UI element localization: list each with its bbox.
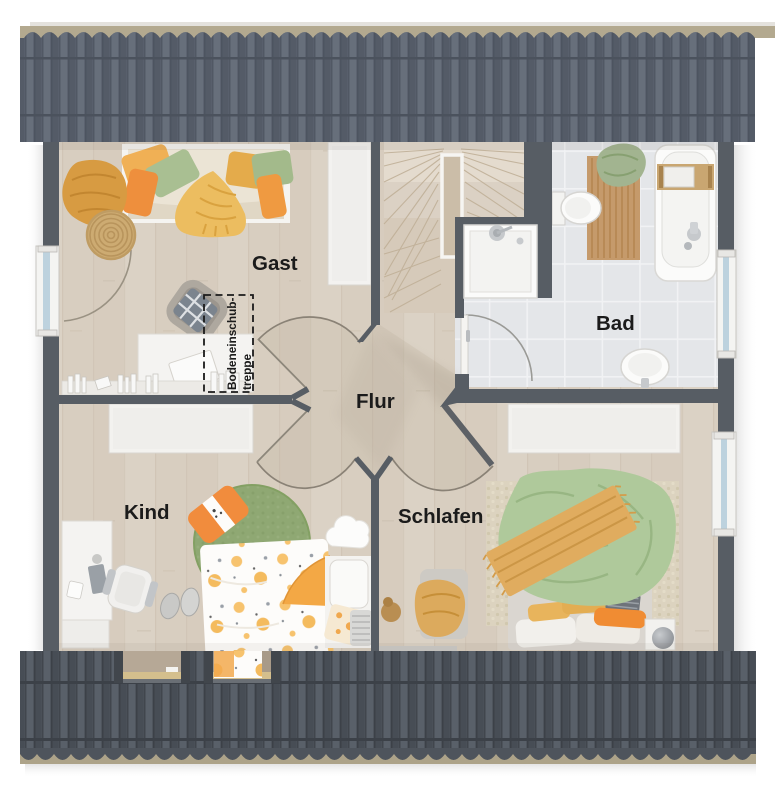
svg-text:treppe: treppe — [240, 354, 254, 390]
svg-text:Kind: Kind — [124, 501, 170, 524]
svg-text:Bad: Bad — [596, 312, 635, 335]
svg-text:Schlafen: Schlafen — [398, 505, 483, 528]
svg-text:Bodeneinschub-: Bodeneinschub- — [225, 298, 239, 390]
svg-text:Gast: Gast — [252, 252, 298, 275]
svg-text:Flur: Flur — [356, 390, 395, 413]
